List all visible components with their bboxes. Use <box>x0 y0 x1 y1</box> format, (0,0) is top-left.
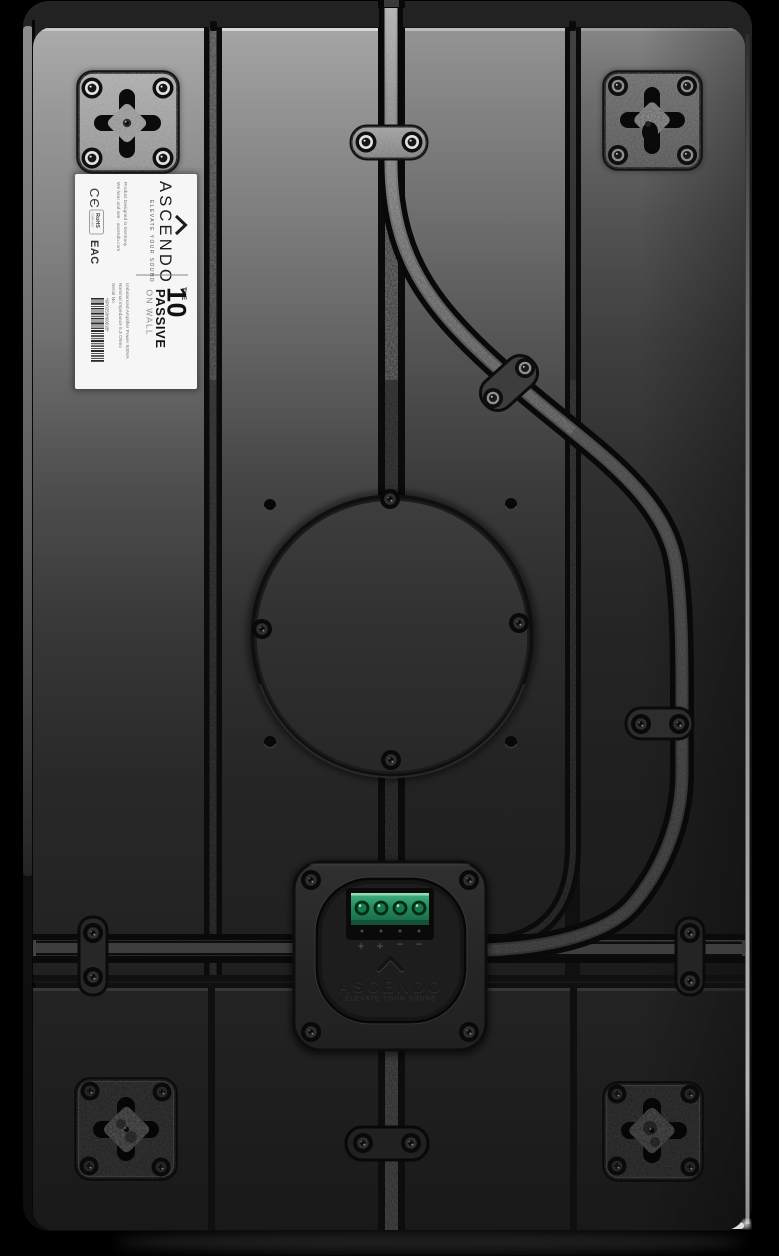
svg-text:+: + <box>357 939 364 953</box>
svg-text:−: − <box>396 937 403 951</box>
svg-text:ASCENDO: ASCENDO <box>338 977 444 996</box>
svg-text:RoHS: RoHS <box>94 213 100 228</box>
svg-text:COMPLIANT: COMPLIANT <box>91 213 95 229</box>
svg-text:ELEVATE YOUR SOUND: ELEVATE YOUR SOUND <box>148 200 154 283</box>
svg-text:ON WALL: ON WALL <box>145 290 155 336</box>
svg-text:We hear and see · ascendo.com: We hear and see · ascendo.com <box>115 182 121 251</box>
svg-text:Product Designed in Germany: Product Designed in Germany <box>122 182 128 247</box>
svg-text:Serial No.: Serial No. <box>110 283 116 304</box>
svg-text:EАC: EАC <box>88 240 100 265</box>
svg-text:ASCENDO: ASCENDO <box>156 181 174 285</box>
svg-text:−: − <box>415 937 422 951</box>
svg-text:Unbalanced Amplifier Power 500: Unbalanced Amplifier Power 500VA <box>124 283 130 359</box>
svg-text:+: + <box>376 939 383 953</box>
svg-text:*0PO253H0001B*: *0PO253H0001B* <box>105 298 110 332</box>
svg-text:ELEVATE YOUR SOUND: ELEVATE YOUR SOUND <box>345 997 437 1003</box>
svg-text:CЄ: CЄ <box>87 188 102 209</box>
svg-text:Nominal Impedance 5.3 Ohms: Nominal Impedance 5.3 Ohms <box>117 283 123 348</box>
